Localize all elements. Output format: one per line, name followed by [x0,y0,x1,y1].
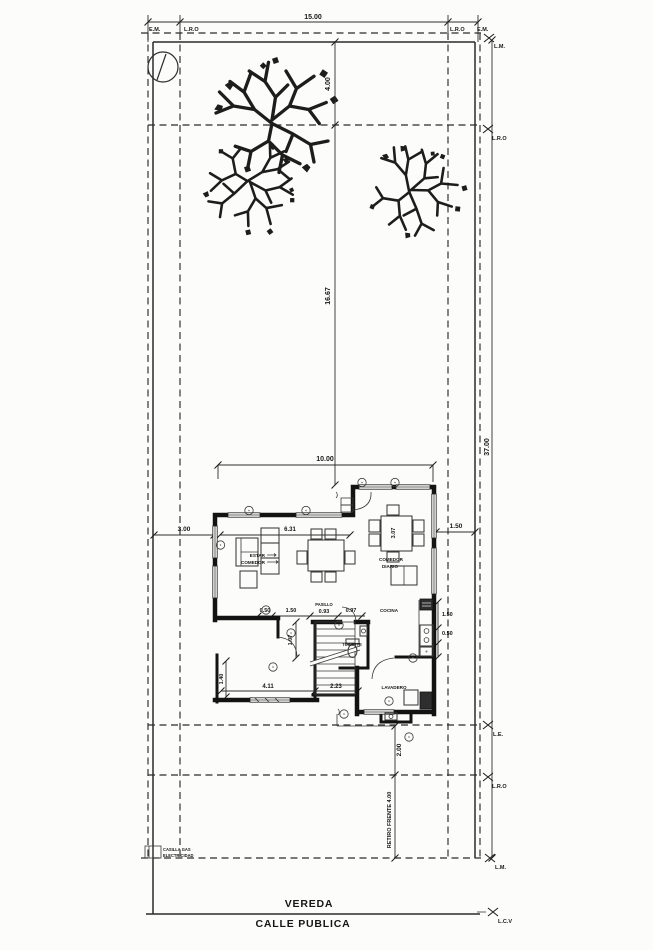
survey-mark-icon [486,906,498,916]
room-label-lavadero: LAVADERO [381,685,407,690]
dim-lot-depth: 37.00 [484,438,491,456]
dim-lot-width: 15.00 [304,14,322,21]
dining-table [308,540,344,571]
dim-walk-200: 2.00 [396,743,403,756]
breakfast-set [369,505,424,585]
laundry-unit [420,692,432,709]
dim-dining-depth: 3.07 [391,528,397,539]
mark-em-right: E.M. [477,27,489,33]
sidewalk-label: VEREDA [285,898,334,910]
dim-pasillo-width: 0.93 [319,609,330,615]
washer [404,690,418,705]
site-plan-drawing: 15.00 37.00 4.00 16.67 10.00 3.00 1.50 6… [0,0,653,950]
dim-room-411: 4.11 [262,684,274,690]
mark-lro-right: L.R.O [450,27,465,33]
keyed-note-circle [340,710,348,718]
chair [297,551,307,564]
mark-lcv: L.C.V [498,919,512,925]
mark-lm-bottom: L.M. [495,865,506,871]
shelf [261,528,279,543]
kitchen-fixtures [419,599,433,657]
chair [325,529,336,539]
survey-mark-icon [481,123,493,133]
chair [311,572,322,582]
utility-label-1: CASILLA GAS [163,847,191,852]
dim-front-strip: 4.00 [325,77,332,91]
room-label-comedor-diario-1: COMEDOR [379,557,404,562]
mark-lro-left: L.R.O [184,27,199,33]
doorbell-icon [330,492,337,498]
survey-mark-icon [482,32,494,42]
stove [420,625,433,646]
toilette-sink [360,626,367,636]
mark-lro-side-upper: L.R.O [492,136,507,142]
dim-kitchen-050: 0.50 [442,631,453,637]
survey-mark-icon [481,771,493,781]
gate-marker-icon [332,709,339,715]
chair [413,534,424,546]
chair [369,520,380,532]
entry [330,492,353,715]
tree-icon [351,124,482,254]
chair [387,505,399,515]
lot-boundary [141,33,481,914]
living-furniture [236,528,279,588]
utility-label-2: ELECTRICIDAD [163,853,194,858]
survey-marks: E.M. L.R.O L.R.O E.M. L.M. L.R.O L.E. L.… [149,27,512,925]
street-labels: VEREDA CALLE PUBLICA [146,898,480,930]
dim-kitchen-150: 1.50 [442,612,453,618]
mark-le-side: L.E. [493,732,504,738]
room-label-toilette: TOILETTE [342,642,362,647]
road-label: CALLE PUBLICA [256,918,351,930]
dining-set [297,529,355,582]
keyed-note-circle [269,663,277,671]
fridge [420,599,433,610]
mark-em-left: E.M. [149,27,161,33]
tree-icon [194,126,311,247]
site-plan-sheet: 15.00 37.00 4.00 16.67 10.00 3.00 1.50 6… [0,0,653,950]
dim-house-width: 10.00 [316,456,334,463]
chair [413,520,424,532]
mark-lro-side-lower: L.R.O [492,784,507,790]
keyed-note-circle [385,697,393,705]
room-label-pasillo: PASILLO [315,602,333,607]
dim-living-width: 6.31 [284,527,296,533]
keyed-note-circle [405,733,413,741]
room-label-comedor-diario-2: DIARIO [382,564,399,569]
lavadero-fixtures [385,690,432,720]
room-label-estar: ESTAR [250,553,266,558]
windows [213,485,436,714]
dim-left-setback: 3.00 [178,526,191,533]
room-label-cocina: COCINA [380,608,399,613]
dim-right-setback: 1.50 [450,523,463,530]
dim-room-140: 1.40 [219,674,225,685]
dim-retiro-frente: RETIRO FRENTE 4.00 [387,792,393,849]
dim-seg-097: 0.97 [346,608,357,614]
chair [369,534,380,546]
house-wall [215,487,434,714]
house-wall-inner [217,618,434,722]
dim-seg-150: 1.50 [286,608,297,614]
side-table [240,571,257,588]
mark-lm-top: L.M. [494,44,505,50]
room-label-comedor: COMEDOR [241,560,266,565]
chair [311,529,322,539]
trees [194,57,481,254]
chair [325,572,336,582]
chair [345,551,355,564]
survey-mark-icon [481,719,493,729]
dim-mid-depth: 16.67 [325,287,332,305]
